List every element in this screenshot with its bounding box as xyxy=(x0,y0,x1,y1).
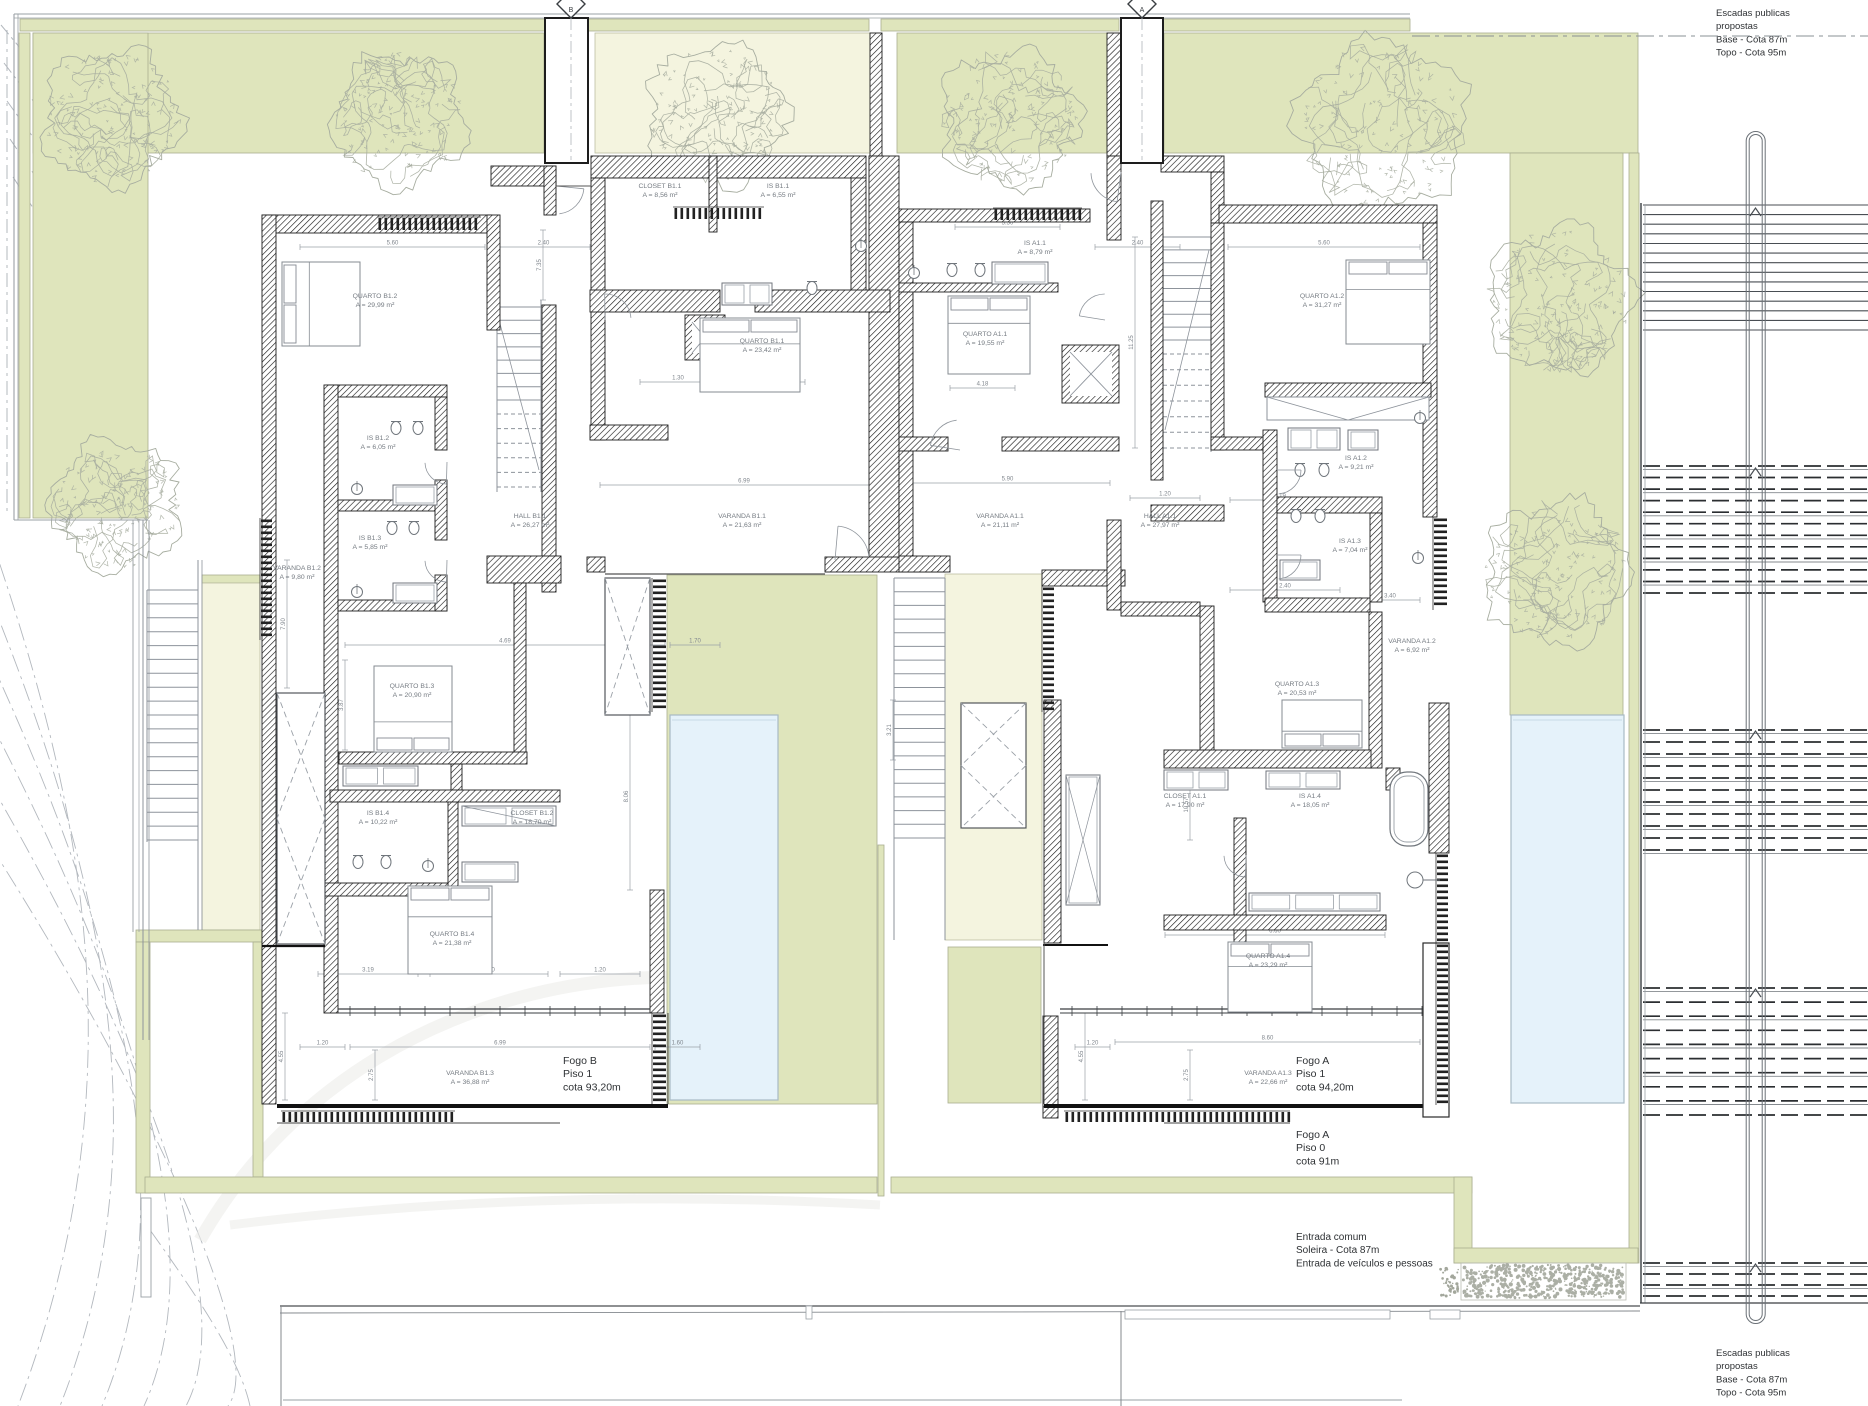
svg-text:3.87: 3.87 xyxy=(339,699,345,711)
svg-text:A: A xyxy=(1140,7,1145,14)
svg-text:1.20: 1.20 xyxy=(317,1041,329,1047)
svg-text:1.20: 1.20 xyxy=(594,968,606,974)
svg-text:8.60: 8.60 xyxy=(1262,1036,1274,1042)
svg-text:2.40: 2.40 xyxy=(1132,241,1144,247)
svg-text:2.40: 2.40 xyxy=(1279,584,1291,590)
svg-text:4.69: 4.69 xyxy=(499,639,511,645)
svg-text:5.60: 5.60 xyxy=(1318,241,1330,247)
svg-text:3.19: 3.19 xyxy=(362,968,374,974)
svg-text:3.21: 3.21 xyxy=(887,724,893,736)
svg-text:4.18: 4.18 xyxy=(977,382,989,388)
svg-text:11.25: 11.25 xyxy=(1129,335,1135,350)
svg-text:6.99: 6.99 xyxy=(494,1041,506,1047)
svg-text:1.70: 1.70 xyxy=(689,639,701,645)
svg-text:4.55: 4.55 xyxy=(279,1050,285,1062)
svg-text:1.30: 1.30 xyxy=(672,376,684,382)
svg-text:B: B xyxy=(569,7,574,14)
svg-text:7.35: 7.35 xyxy=(537,259,543,271)
svg-text:5.60: 5.60 xyxy=(387,241,399,247)
svg-text:1.20: 1.20 xyxy=(1087,1041,1099,1047)
svg-text:1.20: 1.20 xyxy=(1159,492,1171,498)
svg-text:1.60: 1.60 xyxy=(672,1041,684,1047)
svg-text:7.90: 7.90 xyxy=(281,618,287,630)
svg-text:2.75: 2.75 xyxy=(1184,1069,1190,1081)
svg-text:5.90: 5.90 xyxy=(1002,477,1014,483)
svg-text:8.06: 8.06 xyxy=(624,790,630,802)
svg-text:3.40: 3.40 xyxy=(1384,594,1396,600)
svg-text:2.40: 2.40 xyxy=(538,241,550,247)
svg-text:4.55: 4.55 xyxy=(1079,1050,1085,1062)
svg-text:2.75: 2.75 xyxy=(369,1069,375,1081)
svg-text:6.99: 6.99 xyxy=(738,479,750,485)
